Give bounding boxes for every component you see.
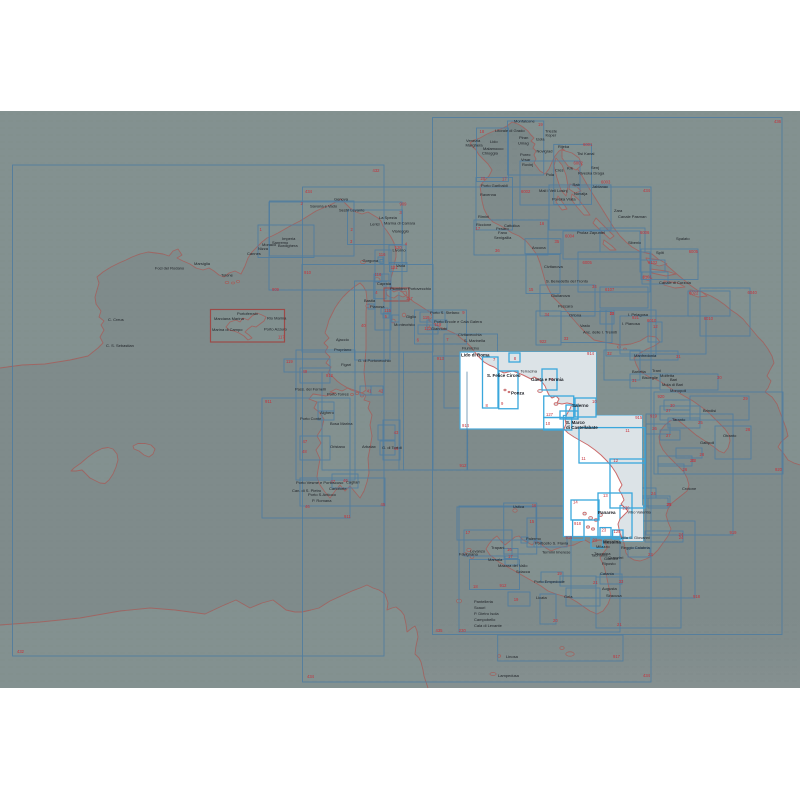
svg-text:Nizza: Nizza [258,246,269,251]
svg-text:13: 13 [603,493,608,498]
svg-text:Pola: Pola [546,172,555,177]
svg-text:Pianosa: Pianosa [370,304,385,309]
svg-text:Brindisi: Brindisi [703,408,716,413]
svg-text:116: 116 [375,272,382,277]
svg-text:46: 46 [305,504,310,509]
svg-text:6101: 6101 [643,275,653,280]
svg-text:920: 920 [658,394,666,399]
svg-text:36: 36 [495,248,500,253]
svg-text:Pescara: Pescara [558,304,573,309]
svg-text:17: 17 [508,554,513,559]
svg-text:6005: 6005 [689,249,699,254]
svg-text:La Spezia: La Spezia [379,215,398,220]
svg-text:20: 20 [481,176,486,181]
svg-text:119: 119 [286,359,293,364]
svg-text:Rab: Rab [573,182,581,187]
svg-text:S. Felice Circeo: S. Felice Circeo [487,373,521,378]
svg-text:6002: 6002 [574,161,584,166]
svg-text:Augusta: Augusta [602,586,617,591]
svg-text:30: 30 [670,403,675,408]
svg-text:Piombino: Piombino [390,286,407,291]
svg-text:Rio Marina: Rio Marina [267,316,287,321]
svg-text:432: 432 [373,168,381,173]
svg-text:Tolone: Tolone [221,273,234,278]
svg-text:21: 21 [617,622,622,627]
svg-text:910: 910 [304,270,312,275]
svg-text:Bordighera: Bordighera [278,243,298,248]
svg-text:Reggio Calabria: Reggio Calabria [621,545,650,550]
svg-text:10: 10 [592,399,597,404]
svg-text:Gorgona: Gorgona [363,258,379,263]
svg-text:911: 911 [344,514,351,519]
svg-text:230: 230 [459,628,467,633]
svg-text:I. Pianosa: I. Pianosa [622,321,641,326]
svg-text:Cala di Levante: Cala di Levante [474,623,503,628]
svg-text:Chioggia: Chioggia [482,151,499,156]
svg-text:116: 116 [379,252,386,257]
svg-text:Foci del Rodano: Foci del Rodano [155,266,185,271]
svg-text:Gallipoli: Gallipoli [700,440,714,445]
svg-text:Taranto: Taranto [672,417,686,422]
svg-text:10: 10 [546,421,551,426]
svg-text:434: 434 [643,673,651,678]
svg-text:Marsiglia: Marsiglia [194,261,211,266]
svg-text:913: 913 [437,356,445,361]
svg-text:16: 16 [532,503,537,508]
svg-text:Lampedusa: Lampedusa [498,673,520,678]
svg-text:Licata: Licata [536,595,547,600]
svg-text:Canale di Curzola: Canale di Curzola [659,280,692,285]
svg-text:Porto Empedocle: Porto Empedocle [534,579,565,584]
svg-text:920: 920 [775,467,783,472]
svg-text:Ajaccio: Ajaccio [336,337,350,342]
svg-text:Manfredonia: Manfredonia [634,353,657,358]
svg-text:Giannutri: Giannutri [431,326,447,331]
svg-text:Salerno: Salerno [572,403,589,408]
svg-text:Scauri: Scauri [474,605,485,610]
svg-text:Rimini: Rimini [478,214,489,219]
svg-text:Granzirri: Granzirri [608,555,623,560]
svg-text:14: 14 [573,500,578,505]
svg-text:Marghera: Marghera [466,143,484,148]
svg-text:Porto Conte: Porto Conte [300,416,322,421]
svg-text:26: 26 [652,426,657,431]
svg-text:18: 18 [480,129,485,134]
svg-text:Campobello: Campobello [474,617,496,622]
svg-text:Siracusa: Siracusa [606,593,622,598]
svg-text:Izola: Izola [536,137,545,142]
svg-text:19: 19 [557,571,562,576]
svg-text:Rovinj: Rovinj [522,162,533,167]
svg-text:Riposto: Riposto [602,561,616,566]
svg-text:912: 912 [500,583,508,588]
svg-text:27: 27 [666,433,671,438]
svg-text:G. di Portovecchio: G. di Portovecchio [358,358,391,363]
svg-text:Povska Vrata: Povska Vrata [552,197,576,202]
svg-text:25: 25 [698,420,703,425]
svg-text:Mola di Bari: Mola di Bari [662,382,683,387]
svg-text:48: 48 [302,449,307,454]
svg-text:49: 49 [303,369,308,374]
svg-text:Messina: Messina [603,540,621,545]
svg-text:Mali i Veli Losinj: Mali i Veli Losinj [539,188,568,193]
svg-text:Otranto: Otranto [723,433,737,438]
svg-text:Propriano: Propriano [334,347,352,352]
svg-text:6010: 6010 [704,316,714,321]
svg-text:20: 20 [553,618,558,623]
svg-text:432: 432 [17,649,25,654]
svg-text:6004: 6004 [565,234,575,239]
svg-text:16: 16 [507,547,512,552]
svg-text:C. S. Sebastian: C. S. Sebastian [106,343,134,348]
svg-text:Jablanac: Jablanac [592,184,608,189]
svg-text:Carloforte: Carloforte [329,486,347,491]
svg-text:Senj: Senj [591,165,599,170]
svg-text:Cagliari: Cagliari [346,480,360,485]
svg-text:922: 922 [540,339,548,344]
svg-text:914: 914 [587,351,595,356]
svg-text:Ortona: Ortona [569,313,582,318]
svg-text:918: 918 [574,521,582,526]
svg-text:12: 12 [613,458,618,463]
svg-text:434: 434 [307,674,315,679]
svg-text:912: 912 [460,463,468,468]
svg-text:Giulianova: Giulianova [551,293,571,298]
svg-text:19: 19 [514,597,519,602]
svg-text:Riveska Draga: Riveska Draga [578,171,605,176]
svg-text:17: 17 [502,177,507,182]
svg-text:Arbatax: Arbatax [362,444,376,449]
svg-text:120: 120 [614,529,622,534]
svg-text:Livorno: Livorno [393,248,407,253]
svg-text:909: 909 [400,202,408,207]
svg-text:915: 915 [566,535,574,540]
svg-text:10: 10 [610,311,615,316]
svg-text:Marciana Marina: Marciana Marina [214,316,245,321]
svg-text:33: 33 [619,579,624,584]
svg-text:Sibenic: Sibenic [628,240,641,245]
svg-text:22: 22 [593,538,598,543]
svg-text:434: 434 [305,189,313,194]
svg-text:Trapani: Trapani [491,545,505,550]
svg-text:6002: 6002 [521,189,531,194]
svg-text:Linosa: Linosa [506,654,519,659]
svg-text:Fiumicino: Fiumicino [462,346,480,351]
svg-text:Bastia: Bastia [364,298,376,303]
svg-text:917: 917 [613,654,621,659]
svg-text:Marina di Campo: Marina di Campo [212,327,243,332]
svg-text:Vada: Vada [396,263,406,268]
svg-text:34: 34 [545,312,550,317]
svg-text:Koper: Koper [546,133,557,138]
svg-text:Villa S. Giovanni: Villa S. Giovanni [621,535,650,540]
svg-text:Novigrad: Novigrad [537,149,553,154]
svg-text:Prolaz Zapuntel: Prolaz Zapuntel [577,230,605,235]
svg-text:6102: 6102 [648,260,658,265]
svg-text:Genova: Genova [334,197,349,202]
svg-text:Piran: Piran [519,135,528,140]
svg-text:Porticello S. Flavia: Porticello S. Flavia [535,541,569,546]
svg-text:34: 34 [592,284,597,289]
svg-text:43: 43 [394,430,399,435]
svg-text:918: 918 [693,594,701,599]
svg-text:436: 436 [774,119,782,124]
svg-text:914: 914 [462,423,470,428]
svg-text:Porto S.Antioco: Porto S.Antioco [308,492,337,497]
svg-text:127: 127 [546,412,554,417]
svg-text:30: 30 [717,375,722,380]
svg-text:Gela: Gela [564,594,573,599]
svg-text:Porto Garibaldi: Porto Garibaldi [481,183,508,188]
svg-text:26: 26 [683,467,688,472]
svg-text:Porto S. Stefano: Porto S. Stefano [430,310,460,315]
svg-text:Tisi Kanal: Tisi Kanal [577,151,595,156]
svg-text:S. Marinella: S. Marinella [464,338,486,343]
svg-text:24: 24 [651,491,656,496]
svg-text:47: 47 [303,439,308,444]
svg-text:Lerici: Lerici [370,221,380,226]
svg-text:6001: 6001 [583,142,593,147]
svg-text:29: 29 [743,396,748,401]
svg-text:Catania: Catania [600,571,615,576]
svg-text:S. Benedetto del Tronto: S. Benedetto del Tronto [546,279,589,284]
svg-text:Ravenna: Ravenna [480,192,497,197]
svg-text:Gaeta e Formia: Gaeta e Formia [531,377,564,382]
svg-text:117: 117 [406,296,413,301]
svg-text:15: 15 [529,287,534,292]
svg-text:23: 23 [648,552,653,557]
svg-text:27: 27 [666,408,671,413]
svg-text:6022: 6022 [689,291,699,296]
svg-text:6010: 6010 [647,318,657,323]
svg-text:Senigallia: Senigallia [494,235,512,240]
svg-text:Mazara del Vallo: Mazara del Vallo [498,563,528,568]
svg-text:42: 42 [379,389,384,394]
svg-text:Pass. dei Fornelli: Pass. dei Fornelli [295,387,326,392]
svg-text:Vasto: Vasto [580,323,591,328]
svg-text:31: 31 [676,354,681,359]
svg-text:Porto Torres: Porto Torres [327,392,349,397]
svg-text:Viareggio: Viareggio [392,229,410,234]
svg-text:18: 18 [473,584,478,589]
svg-text:434: 434 [643,188,651,193]
svg-text:45: 45 [381,502,386,507]
svg-text:Umag: Umag [518,141,529,146]
svg-text:915: 915 [635,415,643,420]
svg-text:Anc. delle I. Tremiti: Anc. delle I. Tremiti [583,330,617,335]
svg-text:23: 23 [602,528,607,533]
svg-text:Rijeka: Rijeka [558,144,570,149]
svg-text:I. Pelagosa: I. Pelagosa [628,312,649,317]
svg-text:31: 31 [632,378,637,383]
svg-text:911: 911 [265,399,272,404]
svg-text:6005: 6005 [583,260,593,265]
svg-text:Pantelleria: Pantelleria [474,599,494,604]
svg-text:Sestri Levante: Sestri Levante [339,208,365,213]
svg-text:Panarea: Panarea [598,510,616,515]
svg-text:15: 15 [530,519,535,524]
svg-text:12: 12 [653,324,658,329]
svg-text:Figari: Figari [341,362,351,367]
svg-text:Novalja: Novalja [574,191,588,196]
svg-text:Montecristo: Montecristo [394,322,415,327]
svg-text:Savona e Vado: Savona e Vado [310,204,338,209]
svg-text:Porto Azzuro: Porto Azzuro [264,327,288,332]
svg-text:Bosa Marina: Bosa Marina [330,421,353,426]
svg-text:Milazzo: Milazzo [596,544,610,549]
svg-text:23: 23 [691,458,696,463]
svg-text:Ancona: Ancona [532,245,546,250]
svg-text:Vibo Valentia: Vibo Valentia [628,510,652,515]
svg-text:16: 16 [540,221,545,226]
svg-text:Barletta: Barletta [632,369,647,374]
svg-text:Marina di Carrara: Marina di Carrara [384,221,416,226]
svg-text:di Castellabate: di Castellabate [566,425,598,430]
svg-text:Litorale di Grado: Litorale di Grado [495,128,525,133]
svg-text:11: 11 [625,428,630,433]
svg-text:Alghero: Alghero [320,410,335,415]
svg-text:Civitavecchia: Civitavecchia [458,332,482,337]
svg-text:Lido di Roma: Lido di Roma [461,353,490,358]
svg-text:28: 28 [700,452,705,457]
svg-text:Split: Split [656,250,665,255]
svg-text:919: 919 [730,530,738,535]
svg-text:919: 919 [650,414,658,419]
svg-text:Cannes: Cannes [247,251,261,256]
svg-text:115: 115 [384,308,391,313]
svg-text:Cattolica: Cattolica [504,223,520,228]
svg-text:912: 912 [326,373,334,378]
svg-text:Marsala: Marsala [488,557,503,562]
svg-text:119: 119 [423,315,430,320]
svg-text:Monopoli: Monopoli [670,388,686,393]
svg-text:Cres: Cres [555,168,563,173]
svg-text:21: 21 [593,580,598,585]
svg-text:Spalato: Spalato [676,236,690,241]
svg-text:Ustica: Ustica [513,504,525,509]
svg-text:32: 32 [607,351,612,356]
svg-text:Ponza: Ponza [511,391,525,396]
svg-text:Termini Imerese: Termini Imerese [542,550,571,555]
svg-text:Krk: Krk [567,166,573,171]
svg-text:33: 33 [564,336,569,341]
svg-text:19: 19 [538,122,543,127]
svg-text:25: 25 [666,502,671,507]
svg-text:Civitanova: Civitanova [544,264,563,269]
svg-text:Favignana: Favignana [459,552,478,557]
svg-text:P. Romana: P. Romana [312,498,332,503]
svg-text:Lido: Lido [490,139,498,144]
svg-text:909: 909 [272,287,280,292]
svg-text:17: 17 [466,530,471,535]
svg-text:C. Creus: C. Creus [108,317,124,322]
svg-text:Bisceglie: Bisceglie [642,375,659,380]
svg-text:6040: 6040 [748,290,758,295]
svg-text:24: 24 [679,532,684,537]
svg-text:11: 11 [581,456,586,461]
svg-text:28: 28 [746,427,751,432]
svg-text:6006: 6006 [640,230,650,235]
svg-text:Crotone: Crotone [682,486,697,491]
svg-text:Monfalcone: Monfalcone [514,119,535,124]
svg-text:435: 435 [436,628,444,633]
svg-text:Sciacca: Sciacca [516,569,531,574]
svg-text:Porto Vesme e Portoscuso: Porto Vesme e Portoscuso [296,480,344,485]
svg-text:6107: 6107 [605,287,615,292]
svg-text:Zara: Zara [614,208,623,213]
svg-text:Terracina: Terracina [521,369,538,374]
svg-text:41: 41 [367,389,372,394]
svg-text:Riccione: Riccione [476,222,492,227]
svg-text:Canale Pasman: Canale Pasman [618,214,646,219]
svg-text:40: 40 [361,323,366,328]
svg-text:117: 117 [278,335,285,340]
svg-text:Giglio: Giglio [406,314,417,319]
svg-text:Porto Ercole e Cala Galera: Porto Ercole e Cala Galera [434,319,483,324]
svg-text:35: 35 [555,239,560,244]
svg-text:Oristano: Oristano [330,444,346,449]
svg-text:P. Dietro Isola: P. Dietro Isola [474,611,499,616]
svg-text:Portovecchio: Portovecchio [408,286,432,291]
svg-text:Taormina: Taormina [591,553,608,558]
